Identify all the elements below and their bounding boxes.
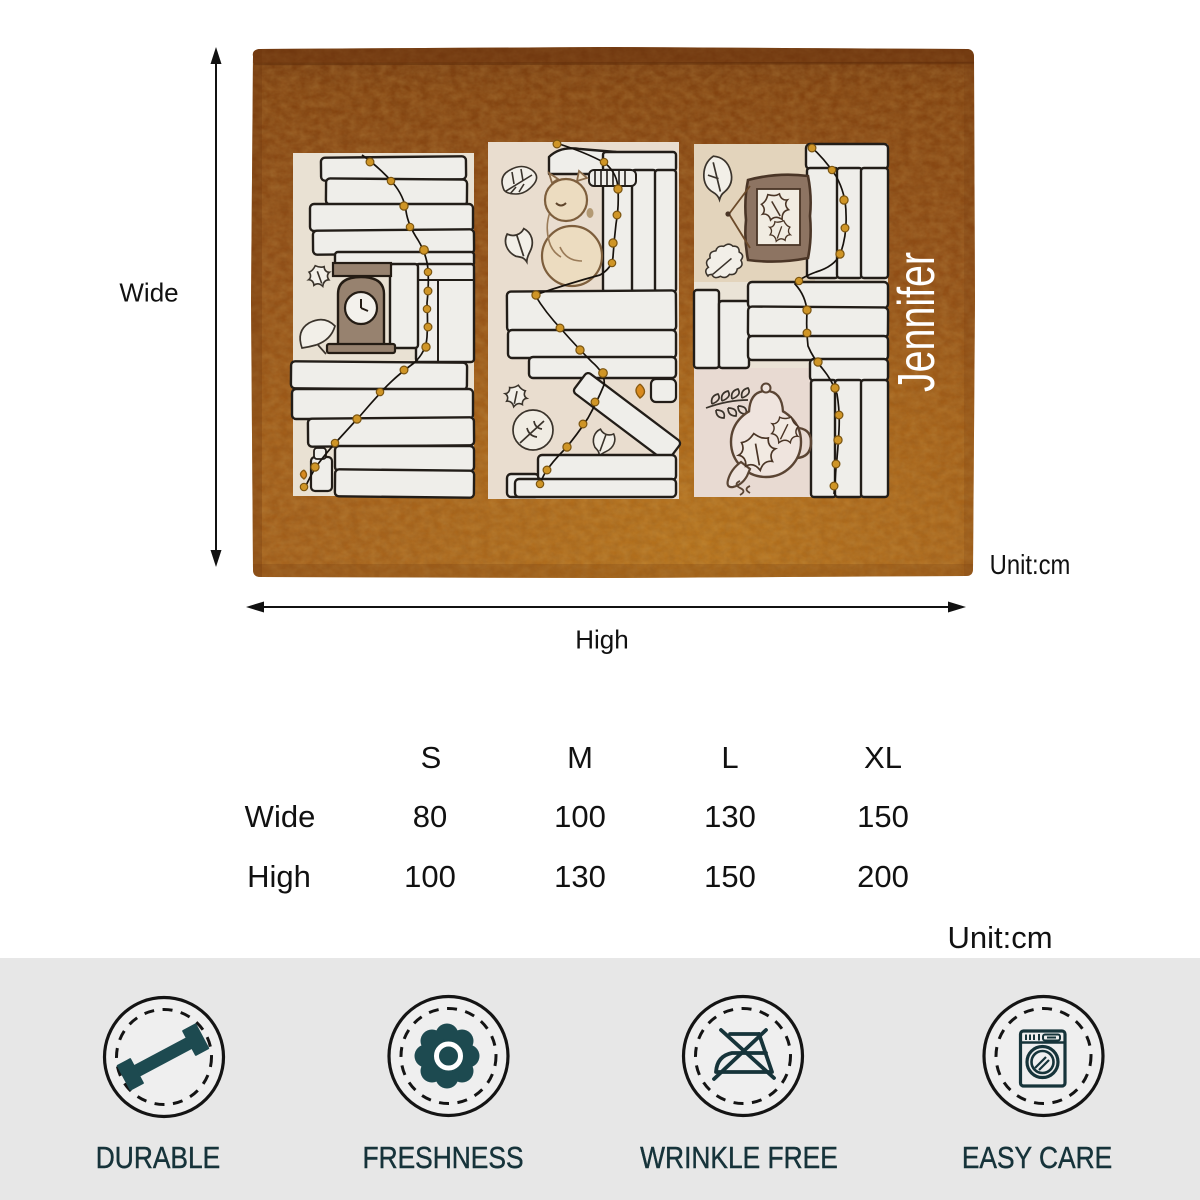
svg-text:Jennifer: Jennifer [888, 252, 946, 392]
